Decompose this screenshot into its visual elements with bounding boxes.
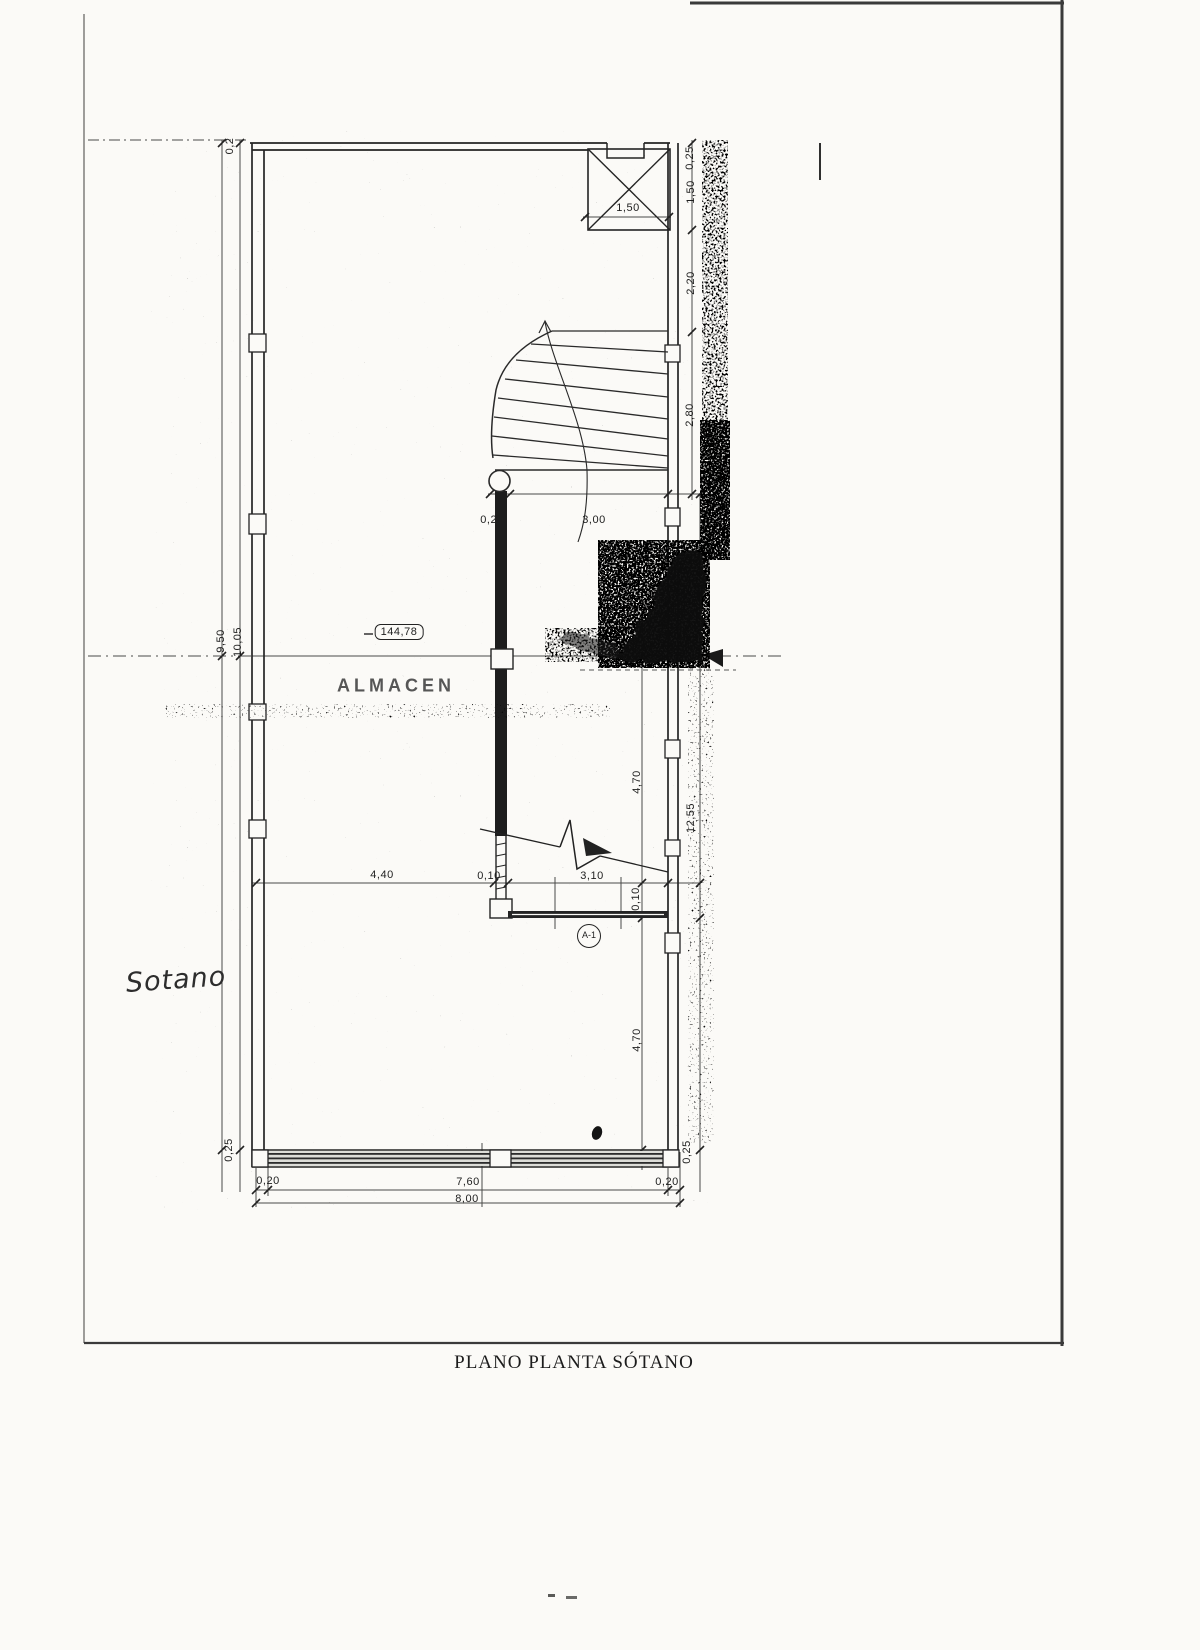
- dim-top-wall: 0,2: [224, 138, 236, 155]
- dim-bottom-760: 7,60: [456, 1176, 479, 1188]
- dim-right-025-top: 0,25: [684, 146, 696, 169]
- dim-stairs-300: 3,00: [582, 514, 605, 526]
- dim-right-025-bot: 0,25: [681, 1140, 693, 1163]
- dim-right-010: 0,10: [630, 887, 642, 910]
- dim-right-220: 2,20: [685, 271, 697, 294]
- dim-mid-010: 0,10: [477, 870, 500, 882]
- bottom-wall: [252, 1150, 679, 1167]
- plan-drawing: [0, 0, 1200, 1650]
- dim-right-470b: 4,70: [631, 1028, 643, 1051]
- scanned-floor-plan-page: 0,2 0,25 1,50 1,50 2,20 2,80 0,20 3,00 1…: [0, 0, 1200, 1650]
- dim-shaft-150: 1,50: [616, 202, 639, 214]
- dim-bottom-020-right: 0,20: [655, 1176, 678, 1188]
- dim-mid-440: 4,40: [370, 869, 393, 881]
- dim-right-1255: 12,55: [685, 803, 697, 833]
- stairs-newel-post: [489, 471, 510, 492]
- section-marker-a1: A-1: [577, 924, 601, 948]
- sheet-title: PLANO PLANTA SÓTANO: [454, 1352, 694, 1374]
- dim-left-950: 9,50: [215, 629, 227, 652]
- section-beam: [508, 911, 668, 918]
- dim-right-470a: 4,70: [631, 770, 643, 793]
- dim-right-150: 1,50: [685, 180, 697, 203]
- dim-right-280: 2,80: [684, 403, 696, 426]
- dim-bottom-020-left: 0,20: [256, 1175, 279, 1187]
- dim-bottom-800: 8,00: [455, 1193, 478, 1205]
- dim-mid-310: 3,10: [580, 870, 603, 882]
- dim-left-1005: 10,05: [232, 627, 244, 657]
- dim-left-025-bot: 0,25: [223, 1138, 235, 1161]
- area-badge: 144,78: [375, 624, 424, 640]
- room-label: ALMACEN: [337, 676, 455, 697]
- dim-stairs-020: 0,20: [480, 514, 503, 526]
